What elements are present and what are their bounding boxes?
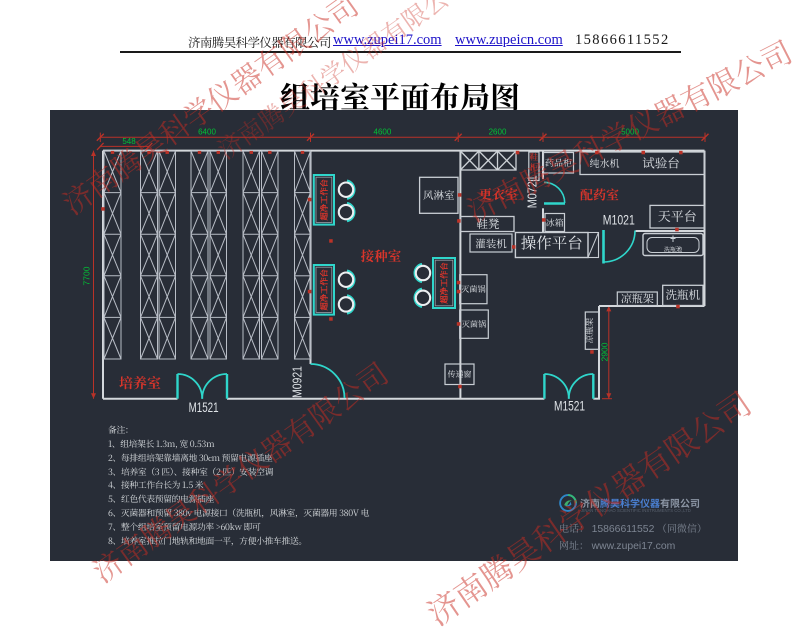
svg-text:2600: 2600 [489, 127, 507, 136]
svg-text:灭菌锅: 灭菌锅 [462, 319, 487, 330]
svg-text:纯水机: 纯水机 [590, 155, 620, 170]
svg-text:548: 548 [122, 137, 136, 146]
svg-text:接种室: 接种室 [361, 245, 402, 265]
svg-text:M1021: M1021 [603, 213, 635, 228]
svg-text:5000: 5000 [621, 127, 639, 136]
svg-text:鞋凳: 鞋凳 [477, 216, 500, 232]
svg-text:更衣室: 更衣室 [479, 184, 518, 203]
svg-text:传递窗: 传递窗 [448, 369, 472, 380]
svg-text:灭菌锅: 灭菌锅 [461, 284, 486, 295]
svg-text:超净工作台: 超净工作台 [318, 268, 330, 310]
svg-text:试验台: 试验台 [642, 154, 680, 172]
svg-text:洗瓶机: 洗瓶机 [666, 287, 701, 303]
svg-text:操作平台: 操作平台 [521, 232, 584, 254]
svg-text:M1521: M1521 [554, 399, 585, 414]
svg-text:冰箱: 冰箱 [546, 216, 564, 229]
svg-text:凉瓶架: 凉瓶架 [583, 317, 595, 343]
svg-text:7700: 7700 [81, 266, 91, 285]
svg-text:M1521: M1521 [189, 400, 219, 415]
svg-text:4600: 4600 [374, 127, 392, 136]
svg-text:灌装机: 灌装机 [475, 236, 507, 251]
svg-text:药品柜: 药品柜 [545, 156, 572, 169]
svg-text:天平台: 天平台 [658, 206, 697, 225]
svg-text:2900: 2900 [600, 342, 610, 361]
svg-text:培养室: 培养室 [119, 373, 161, 393]
svg-text:M0921: M0921 [289, 366, 304, 398]
svg-text:凉瓶架: 凉瓶架 [621, 290, 654, 306]
svg-text:柜: 柜 [530, 161, 539, 173]
svg-text:6400: 6400 [198, 127, 216, 136]
svg-text:洗瓶池: 洗瓶池 [664, 245, 682, 254]
svg-text:风淋室: 风淋室 [423, 188, 455, 203]
svg-text:超净工作台: 超净工作台 [438, 262, 450, 304]
svg-text:M0721: M0721 [525, 175, 540, 208]
svg-text:配药室: 配药室 [580, 185, 619, 204]
svg-text:超净工作台: 超净工作台 [318, 178, 330, 220]
